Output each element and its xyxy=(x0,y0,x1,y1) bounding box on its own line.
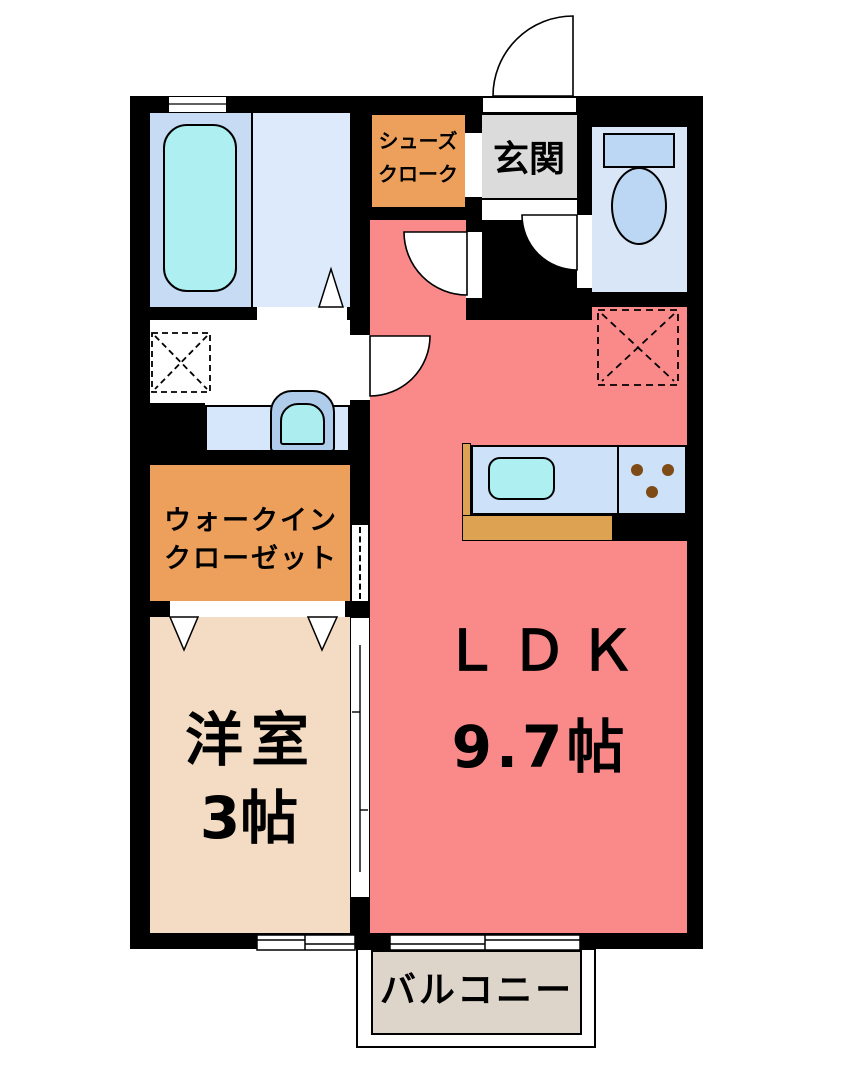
hall-ldk-door-opening xyxy=(466,232,482,298)
bathroom-window-icon xyxy=(168,96,227,113)
western-room-floor xyxy=(150,617,350,933)
toilet-tank xyxy=(603,133,675,168)
walk-in-closet-label-line1: ウォークイン xyxy=(164,508,338,535)
western-room-label: 洋室 xyxy=(185,711,317,769)
kitchen-sink-icon xyxy=(488,457,555,500)
shoe-cloak-label-line1: シューズ xyxy=(379,131,458,151)
shoe-cloak-opening xyxy=(465,133,482,197)
ldk-size-label: 9.7帖 xyxy=(452,718,629,776)
ldk-floor xyxy=(370,220,687,933)
kitchen-counter-edge-bottom xyxy=(462,515,613,541)
gas-stove-burner-icon xyxy=(662,464,674,476)
walk-in-closet-label-line2: クローゼット xyxy=(164,546,338,573)
wash-basin-bowl xyxy=(280,403,325,445)
washroom-door-opening xyxy=(350,335,370,400)
hall-wall-zone xyxy=(466,220,592,320)
entrance-label: 玄関 xyxy=(493,142,565,178)
sliding-door-icon xyxy=(350,617,370,898)
balcony-label: バルコニー xyxy=(380,973,574,1009)
kitchen-counter-divider xyxy=(617,445,619,515)
ldk-label: ＬＤＫ xyxy=(443,624,647,680)
shoe-cloak-label-line2: クローク xyxy=(378,164,458,184)
gas-stove-burner-icon xyxy=(646,486,658,498)
bathroom-door-sill xyxy=(257,307,347,320)
bathtub-icon xyxy=(163,124,237,292)
bathroom-floor xyxy=(253,113,350,307)
stove-base xyxy=(613,515,687,541)
floor-plan: シューズ クローク 玄関 ウォークイン クローゼット 洋室 3帖 ＬＤＫ 9.7… xyxy=(0,0,864,1071)
closet-opening xyxy=(170,601,345,617)
toilet-door-opening xyxy=(577,215,592,288)
toilet-icon xyxy=(611,167,667,245)
entrance-door-swing-icon xyxy=(493,16,573,96)
washroom-wall-block xyxy=(150,403,205,465)
entrance-door-sill xyxy=(482,97,577,113)
western-room-size-label: 3帖 xyxy=(200,789,298,847)
closet-ldk-opening-dash xyxy=(359,527,361,599)
gas-stove-burner-icon xyxy=(631,464,643,476)
